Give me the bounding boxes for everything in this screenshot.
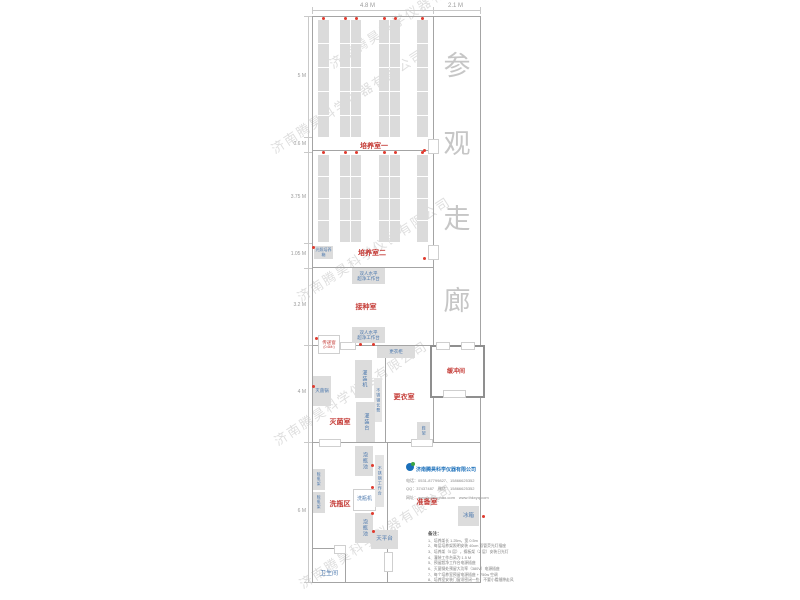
company-web: 网址：www.sdtenghao.com www.thkxyq.com: [406, 495, 489, 501]
power-socket-dot: [312, 385, 315, 388]
company-logo-icon: [406, 463, 414, 471]
locker: 更衣柜: [377, 346, 415, 358]
room-label-washing: 洗瓶区: [330, 499, 351, 509]
door-culture1-corridor: [428, 139, 439, 154]
dim-tick: [433, 7, 434, 14]
power-socket-dot: [394, 151, 397, 154]
power-socket-dot: [423, 149, 426, 152]
corridor-title-char: 走: [442, 197, 472, 236]
power-socket-dot: [322, 17, 325, 20]
dim-tick: [480, 7, 481, 14]
note-item: 3、培养架（5 层），搁板架（2 层）安装日光灯: [428, 550, 486, 556]
corridor-title-char: 廊: [442, 279, 472, 318]
clean-bench-bottom: 双人水平 超净工作台: [352, 327, 385, 343]
power-socket-dot: [344, 151, 347, 154]
room-label-toilet: 卫生间: [320, 568, 338, 577]
power-socket-dot: [355, 17, 358, 20]
shelf-rack: [417, 20, 428, 137]
stainless-worktable: 不锈钢工作台: [375, 455, 384, 507]
door-buffer-corridor: [436, 342, 450, 350]
shelf-rack: [390, 155, 400, 243]
power-socket-dot: [371, 512, 374, 515]
dim-tick: [304, 16, 312, 17]
pass-window: 传递窗 (0.6M²): [318, 335, 340, 354]
company-info-block: 济南腾昊科学仪器有限公司 电话：0531-87799827、1586662535…: [406, 458, 489, 501]
dim-label-corridor-width: 2.1 M: [448, 3, 463, 9]
shelf-rack: [351, 155, 361, 243]
balance-table: 天平台: [371, 530, 398, 549]
shelf-rack: [379, 20, 389, 137]
bottle-rack-bottom: 晾瓶架: [313, 492, 325, 513]
dim-tick: [304, 243, 312, 244]
shoe-rack: 鞋架: [417, 422, 430, 440]
dim-label-left: 3.75 M: [286, 194, 306, 200]
sterilizer: 灭菌锅: [313, 376, 331, 406]
dim-label-left: 5 M: [294, 73, 306, 79]
power-socket-dot: [394, 17, 397, 20]
power-socket-dot: [383, 17, 386, 20]
dim-tick: [304, 152, 312, 153]
bottle-rack-top: 晾瓶架: [313, 469, 325, 490]
door-inoculation-sterilization: [340, 342, 356, 350]
dim-label-left: 3.2 M: [288, 302, 306, 308]
pass-window-area: (0.6M²): [323, 345, 334, 349]
power-socket-dot: [315, 337, 318, 340]
corridor-title-char: 参: [442, 44, 472, 83]
room-label-sterilization: 灭菌室: [330, 417, 351, 427]
room-label-changing: 更衣室: [394, 392, 415, 402]
company-qq: QQ：37437487 微信：15866625352: [406, 486, 489, 492]
filling-table: 灌装台: [356, 402, 375, 442]
dim-label-left: 4 M: [294, 389, 306, 395]
clean-bench-label: 超净工作台: [357, 276, 380, 281]
power-socket-dot: [372, 343, 375, 346]
company-phone: 电话：0531-87799827、15866625352: [406, 478, 489, 484]
door-buffer-corridor: [461, 342, 475, 350]
note-item: 6、灭菌锅处预留大功率（380V）电源插座: [428, 567, 486, 573]
door-changing-preparation: [411, 439, 433, 447]
room-label-culture1: 培养室一: [360, 141, 388, 151]
corridor-title-char: 观: [442, 122, 472, 161]
room-label-inoculation: 接种室: [356, 302, 377, 312]
notes-block: 备注： 1、培养架长 1.25m，宽 0.5m2、每层培养架照明安装 40cm …: [428, 531, 486, 584]
dim-tick: [304, 137, 312, 138]
dim-label-left: 0.6 M: [288, 141, 306, 147]
power-socket-dot: [312, 246, 315, 249]
power-socket-dot: [359, 343, 362, 346]
shelf-rack: [340, 20, 350, 137]
company-name: 济南腾昊科学仪器有限公司: [416, 467, 476, 473]
power-socket-dot: [371, 464, 374, 467]
shelf-rack: [417, 155, 428, 243]
door-sterilization-washing: [319, 439, 341, 447]
bottle-washer: 洗瓶机: [353, 489, 376, 511]
stainless-bench: 不锈钢长凳: [374, 378, 382, 422]
room-label-culture2: 培养室二: [358, 248, 386, 258]
door-culture2-corridor: [428, 245, 439, 260]
wall-top: [312, 16, 481, 17]
door-toilet: [334, 545, 346, 554]
power-socket-dot: [423, 257, 426, 260]
clean-bench-top: 双人水平 超净工作台: [352, 268, 385, 284]
power-socket-dot: [344, 17, 347, 20]
dim-label-main-width: 4.8 M: [360, 3, 375, 9]
power-socket-dot: [482, 515, 485, 518]
shelf-rack: [351, 20, 361, 137]
dim-label-left: 1.05 M: [286, 251, 306, 257]
dim-label-left: 6 M: [294, 508, 306, 514]
light-incubator: 光照培养箱: [314, 246, 333, 259]
filling-machine: 灌装机: [355, 360, 372, 398]
shelf-rack: [390, 20, 400, 137]
notes-title: 备注：: [428, 531, 486, 537]
power-socket-dot: [355, 151, 358, 154]
dim-tick: [304, 345, 312, 346]
dim-tick: [312, 7, 313, 14]
top-dimension-line: [312, 10, 481, 11]
room-label-buffer: 缓冲间: [447, 366, 465, 375]
soak-pool-top: 泡瓶池: [355, 446, 373, 476]
dim-tick: [304, 442, 312, 443]
power-socket-dot: [372, 530, 375, 533]
shelf-rack: [318, 155, 329, 243]
shelf-rack: [340, 155, 350, 243]
door-buffer-changing: [443, 390, 466, 398]
floor-plan-canvas: 济南腾昊科学仪器有限公司 济南腾昊科学仪器有限公司 济南腾昊科学仪器有限公司 济…: [0, 0, 800, 600]
left-dimension-line: [308, 16, 309, 583]
shelf-rack: [379, 155, 389, 243]
wall-sterilization-changing: [385, 345, 386, 443]
power-socket-dot: [371, 486, 374, 489]
note-item: 8、培养室安装门窗须密闭一些，不要小看缝隙走风: [428, 578, 486, 584]
dim-tick: [304, 268, 312, 269]
power-socket-dot: [421, 17, 424, 20]
door-washing-preparation: [384, 552, 393, 572]
dim-tick: [304, 582, 312, 583]
shelf-rack: [318, 20, 329, 137]
clean-bench-label: 超净工作台: [357, 335, 380, 340]
power-socket-dot: [322, 151, 325, 154]
fridge: 冰箱: [458, 506, 479, 526]
power-socket-dot: [383, 151, 386, 154]
